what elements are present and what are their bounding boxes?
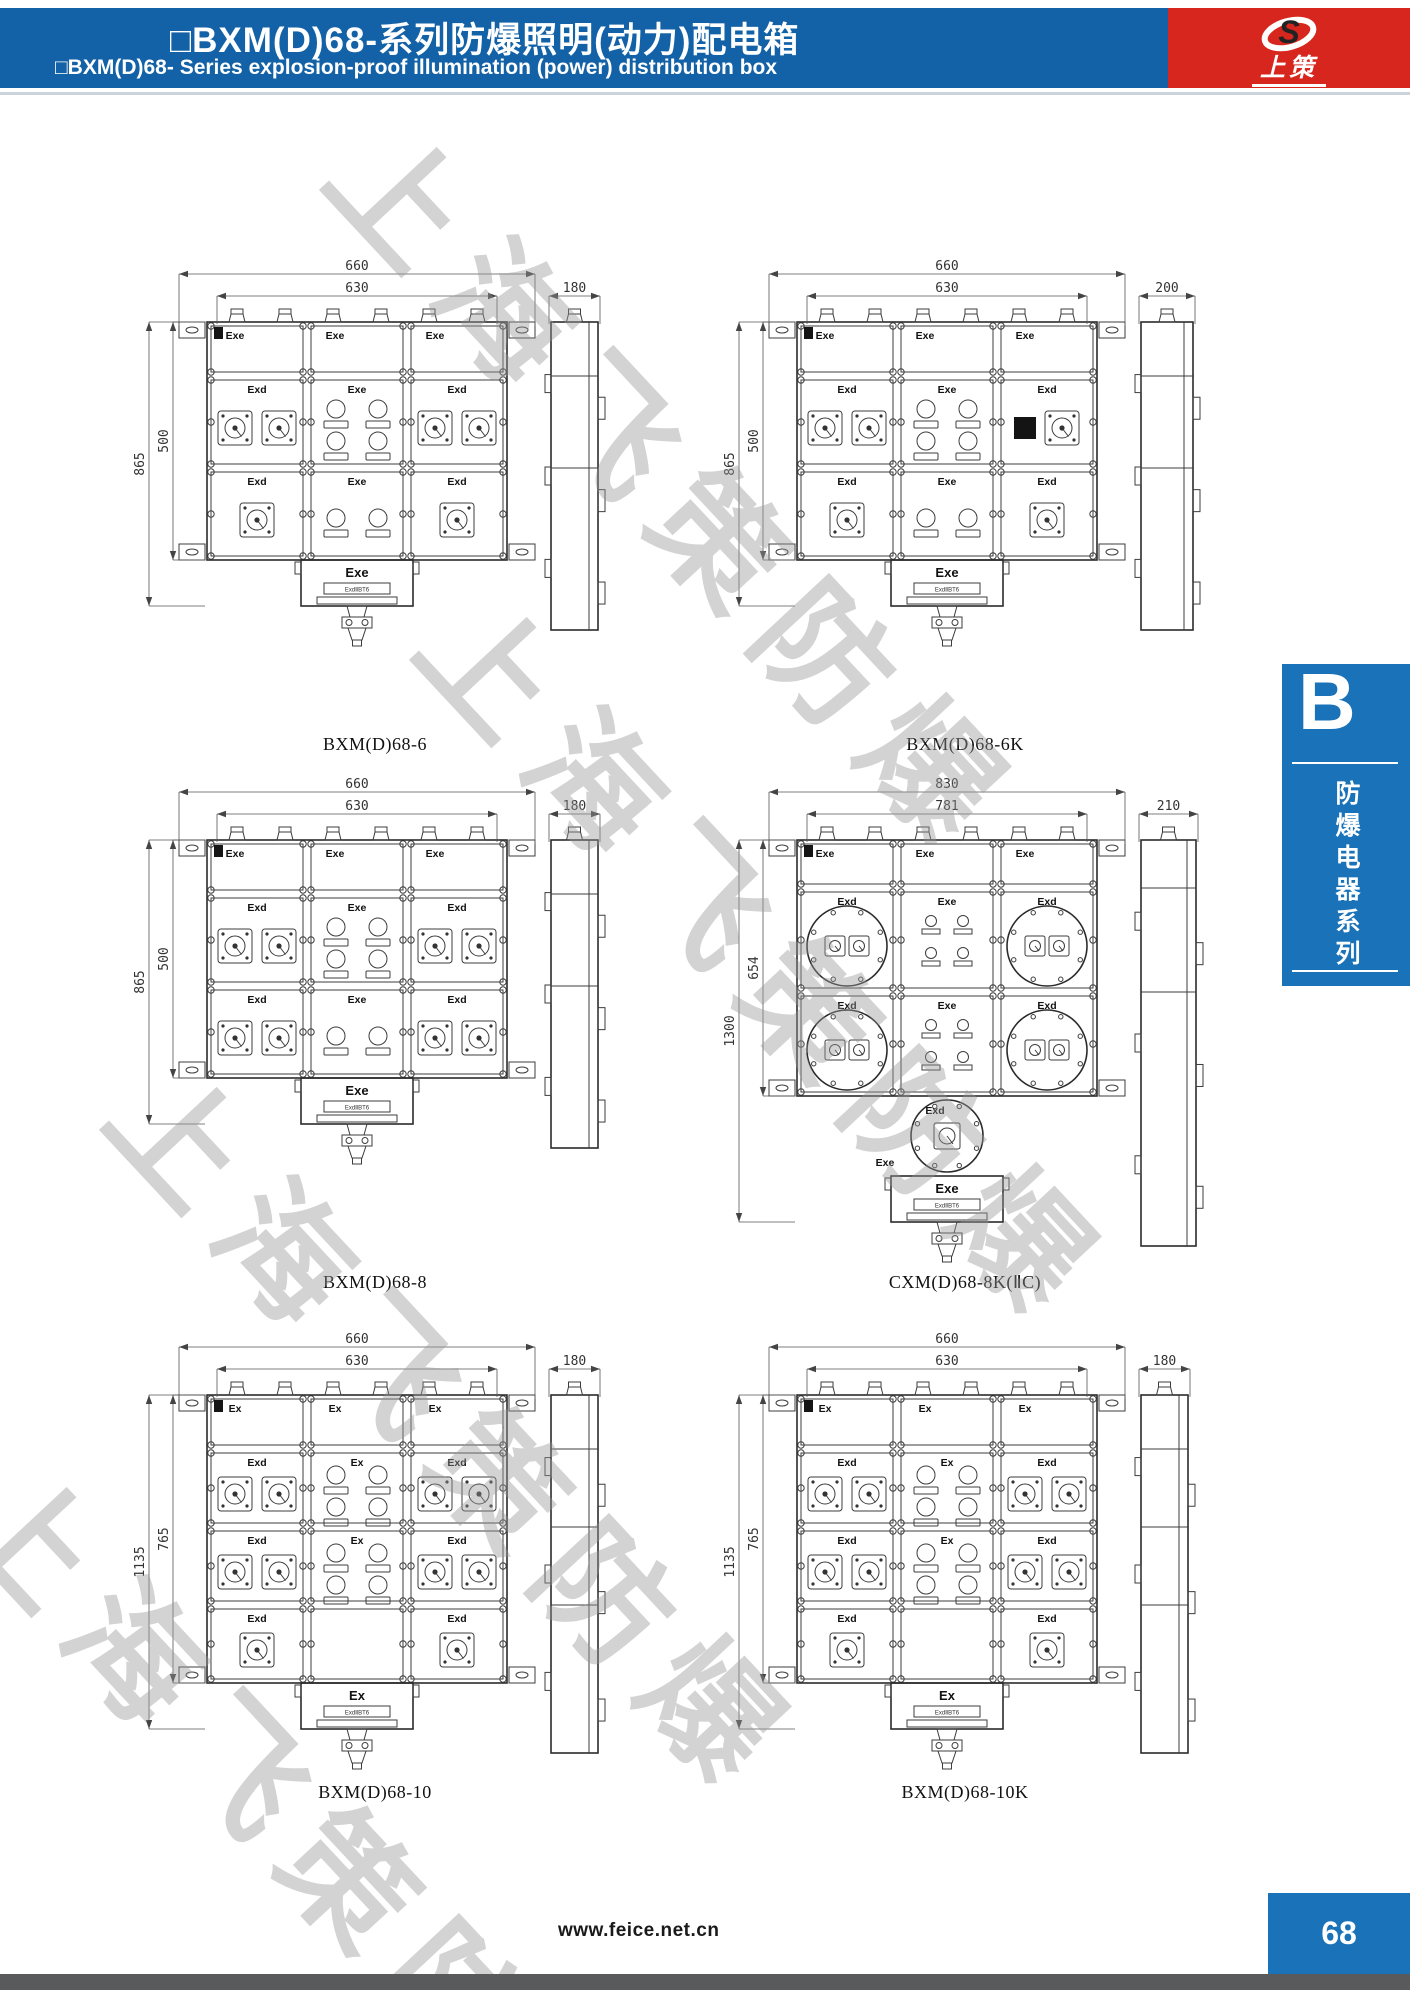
drawing-label: 660	[345, 259, 368, 274]
draw-path	[835, 1050, 839, 1055]
draw-path	[769, 789, 778, 795]
indicator-lamp	[369, 1466, 387, 1484]
draw-circle	[1044, 1647, 1049, 1652]
module-cell	[901, 1399, 993, 1445]
figure-caption: BXM(D)68-10	[95, 1782, 655, 1803]
indicator-lamp	[369, 1576, 387, 1594]
draw-path	[549, 1366, 558, 1372]
footer-strip	[0, 1974, 1410, 1990]
draw-circle	[232, 1569, 237, 1574]
drawing-label: 654	[747, 956, 762, 980]
round-module	[807, 1010, 887, 1090]
drawing-label: Ex	[1019, 1403, 1032, 1415]
draw-circle	[974, 1122, 978, 1126]
draw-rect	[1188, 1484, 1195, 1506]
draw-circle	[465, 1024, 468, 1027]
draw-circle	[811, 1582, 814, 1585]
draw-circle	[245, 956, 248, 959]
draw-circle	[857, 1636, 860, 1639]
draw-path	[1139, 1366, 1148, 1372]
draw-circle	[346, 1138, 352, 1144]
draw-circle	[1059, 1081, 1063, 1085]
draw-path	[170, 1674, 176, 1683]
draw-rect	[545, 1458, 551, 1476]
cable-gland	[917, 1382, 929, 1387]
draw-circle	[276, 943, 281, 948]
pendant-fitting	[347, 1729, 367, 1740]
draw-rect	[324, 1487, 348, 1494]
draw-circle	[289, 414, 292, 417]
draw-rect	[324, 939, 348, 946]
draw-rect	[545, 1077, 551, 1095]
draw-rect	[366, 1487, 390, 1494]
draw-circle	[879, 1582, 882, 1585]
draw-circle	[289, 1504, 292, 1507]
draw-rect	[885, 1685, 891, 1697]
drawing-label: 660	[935, 259, 958, 274]
draw-circle	[443, 506, 446, 509]
draw-circle	[243, 506, 246, 509]
draw-circle	[952, 620, 958, 626]
draw-circle	[489, 1480, 492, 1483]
drawing-label: Exe	[226, 330, 245, 342]
draw-path	[736, 597, 742, 606]
draw-circle	[952, 1236, 958, 1242]
drawing-label: Ex	[351, 1535, 364, 1547]
draw-circle	[454, 517, 459, 522]
drawing-label: 765	[747, 1527, 762, 1550]
draw-path	[1189, 811, 1198, 817]
draw-rect	[907, 1720, 987, 1727]
draw-circle	[489, 932, 492, 935]
draw-circle	[831, 1081, 835, 1085]
module-cell	[411, 1399, 503, 1445]
indicator-lamp	[959, 1544, 977, 1562]
draw-path	[760, 1674, 766, 1683]
mounting-ear	[509, 322, 535, 338]
draw-rect	[956, 1565, 980, 1572]
mounting-ear	[179, 322, 205, 338]
figure-caption: BXM(D)68-10K	[685, 1782, 1245, 1803]
draw-rect	[1135, 1034, 1141, 1052]
draw-circle	[443, 530, 446, 533]
drawing-label: 865	[723, 452, 738, 475]
draw-ellipse	[516, 1672, 528, 1678]
catalog-page: □BXM(D)68-系列防爆照明(动力)配电箱 □BXM(D)68- Serie…	[0, 0, 1410, 1990]
draw-circle	[833, 1660, 836, 1663]
cable-gland	[423, 1382, 435, 1387]
draw-path	[736, 1720, 742, 1729]
drawing-label: Exe	[938, 896, 957, 908]
draw-circle	[421, 1048, 424, 1051]
draw-path	[591, 811, 600, 817]
cable-gland	[375, 1382, 387, 1387]
draw-path	[1116, 271, 1125, 277]
draw-circle	[859, 977, 863, 981]
draw-circle	[276, 425, 281, 430]
draw-circle	[489, 1048, 492, 1051]
draw-rect	[598, 1699, 605, 1721]
drawing-label: 1135	[133, 1546, 148, 1577]
mounting-ear	[769, 544, 795, 560]
draw-circle	[232, 425, 237, 430]
cable-gland	[965, 309, 977, 314]
drawing-label: Ex	[351, 1457, 364, 1469]
draw-rect	[366, 421, 390, 428]
series-label: 防爆电器系列	[1328, 780, 1364, 972]
drawing-label: 660	[345, 777, 368, 792]
draw-circle	[465, 438, 468, 441]
draw-path	[170, 1395, 176, 1404]
cable-gland	[1161, 309, 1173, 314]
draw-circle	[489, 438, 492, 441]
logo-s-icon: S	[1251, 10, 1327, 56]
draw-rect	[413, 562, 419, 574]
round-module	[807, 906, 887, 986]
draw-circle	[245, 1504, 248, 1507]
indicator-lamp	[327, 1498, 345, 1516]
indicator-lamp	[369, 1498, 387, 1516]
draw-circle	[289, 1024, 292, 1027]
module-cell	[1001, 1399, 1093, 1445]
draw-path	[807, 293, 816, 299]
draw-path	[1059, 1050, 1063, 1055]
draw-rect	[295, 1080, 301, 1092]
draw-circle	[362, 620, 368, 626]
draw-circle	[1044, 517, 1049, 522]
cable-gland	[821, 309, 833, 314]
draw-circle	[421, 414, 424, 417]
technical-drawing-svg: ExeExeExeExdExeExdExdExeExdExeExdⅡBT6660…	[95, 238, 655, 728]
cable-gland	[375, 309, 387, 314]
draw-circle	[432, 943, 437, 948]
draw-circle	[465, 414, 468, 417]
draw-rect	[954, 1033, 972, 1038]
draw-rect	[1003, 562, 1009, 574]
draw-circle	[879, 414, 882, 417]
drawing-label: Exd	[247, 1457, 266, 1469]
draw-circle	[476, 1569, 481, 1574]
indicator-lamp	[369, 918, 387, 936]
draw-circle	[245, 932, 248, 935]
mounting-ear	[509, 1062, 535, 1078]
drawing-label: Exd	[837, 1535, 856, 1547]
draw-circle	[822, 1569, 827, 1574]
draw-rect	[956, 530, 980, 537]
draw-rect	[545, 375, 551, 393]
draw-circle	[476, 1491, 481, 1496]
draw-circle	[822, 425, 827, 430]
draw-circle	[844, 1647, 849, 1652]
draw-path	[938, 1751, 956, 1763]
indicator-lamp	[327, 1544, 345, 1562]
draw-circle	[467, 530, 470, 533]
draw-path	[938, 1244, 956, 1256]
draw-circle	[245, 1480, 248, 1483]
draw-circle	[859, 1015, 863, 1019]
draw-path	[736, 1213, 742, 1222]
cable-gland	[567, 1387, 583, 1395]
drawing-label: Exe	[345, 1083, 368, 1098]
draw-rect	[366, 971, 390, 978]
cable-gland	[1013, 309, 1025, 314]
draw-circle	[833, 1636, 836, 1639]
draw-circle	[1031, 1015, 1035, 1019]
drawing-label: ExdⅡBT6	[345, 588, 370, 594]
cable-gland	[1161, 832, 1177, 840]
mounting-ear	[179, 544, 205, 560]
drawing-label: ExdⅡBT6	[935, 1204, 960, 1210]
page-number: 68	[1321, 1915, 1357, 1952]
draw-circle	[1033, 1660, 1036, 1663]
draw-circle	[844, 517, 849, 522]
draw-circle	[245, 1048, 248, 1051]
draw-rect	[1188, 1699, 1195, 1721]
draw-circle	[1078, 1062, 1082, 1066]
draw-path	[217, 293, 226, 299]
draw-circle	[443, 1636, 446, 1639]
drawing-label: Exe	[876, 1157, 895, 1169]
draw-circle	[267, 1636, 270, 1639]
cable-gland	[915, 314, 931, 322]
draw-circle	[232, 943, 237, 948]
mounting-ear	[509, 1395, 535, 1411]
draw-circle	[1022, 1491, 1027, 1496]
draw-circle	[421, 1480, 424, 1483]
indicator-lamp	[327, 400, 345, 418]
drawing-label: Exd	[447, 1457, 466, 1469]
draw-circle	[936, 1236, 942, 1242]
draw-circle	[1012, 958, 1016, 962]
draw-circle	[822, 1491, 827, 1496]
draw-circle	[489, 414, 492, 417]
cable-gland	[1013, 1382, 1025, 1387]
draw-path	[549, 293, 558, 299]
draw-rect	[413, 1080, 419, 1092]
drawing-label: Exd	[1037, 1457, 1056, 1469]
draw-circle	[445, 1558, 448, 1561]
draw-circle	[265, 1024, 268, 1027]
draw-rect	[1188, 1592, 1195, 1614]
draw-rect	[907, 597, 987, 604]
draw-rect	[324, 421, 348, 428]
draw-path	[179, 1344, 188, 1350]
draw-path	[760, 840, 766, 849]
draw-circle	[835, 1504, 838, 1507]
side-view	[551, 322, 598, 630]
draw-circle	[276, 1035, 281, 1040]
drawing-label: Exd	[1037, 1613, 1056, 1625]
draw-rect	[324, 971, 348, 978]
cable-gland	[1059, 832, 1075, 840]
draw-circle	[1057, 530, 1060, 533]
draw-rect	[324, 530, 348, 537]
draw-circle	[1055, 1504, 1058, 1507]
draw-rect	[956, 421, 980, 428]
draw-path	[217, 811, 226, 817]
indicator-lamp	[917, 1498, 935, 1516]
draw-path	[1059, 946, 1063, 951]
draw-path	[348, 1146, 366, 1158]
draw-ellipse	[1106, 845, 1118, 851]
drawing-label: 180	[1153, 1354, 1176, 1369]
cable-gland	[229, 314, 245, 322]
draw-path	[488, 811, 497, 817]
draw-circle	[855, 1582, 858, 1585]
draw-rect	[295, 1685, 301, 1697]
indicator-lamp	[369, 1027, 387, 1045]
cable-gland	[279, 827, 291, 832]
mounting-ear	[769, 1080, 795, 1096]
side-view	[1141, 840, 1196, 1246]
drawing-root: ExeExeExeExdExeExdExdExeExdExeExdⅡBT6660…	[133, 259, 605, 646]
page-number-box: 68	[1268, 1893, 1410, 1974]
cable-gland	[1163, 827, 1175, 832]
draw-circle	[465, 1480, 468, 1483]
draw-circle	[1033, 506, 1036, 509]
draw-circle	[857, 1660, 860, 1663]
draw-circle	[1079, 1480, 1082, 1483]
draw-rect	[914, 421, 938, 428]
mounting-ear	[179, 840, 205, 856]
indicator-lamp	[327, 432, 345, 450]
draw-circle	[465, 1048, 468, 1051]
drawing-label: 830	[935, 777, 958, 792]
draw-rect	[943, 1763, 952, 1769]
draw-circle	[835, 1582, 838, 1585]
draw-circle	[267, 530, 270, 533]
drawing-label: Ex	[329, 1403, 342, 1415]
drawing-label: 865	[133, 452, 148, 475]
indicator-lamp	[369, 400, 387, 418]
cable-gland	[469, 832, 485, 840]
draw-circle	[1059, 425, 1064, 430]
draw-circle	[1011, 1504, 1014, 1507]
draw-path	[938, 628, 956, 640]
drawing-label: Exd	[837, 1457, 856, 1469]
draw-circle	[445, 414, 448, 417]
draw-circle	[432, 1569, 437, 1574]
draw-circle	[243, 530, 246, 533]
push-button	[958, 1020, 969, 1031]
indicator-lamp	[959, 1466, 977, 1484]
page-header: □BXM(D)68-系列防爆照明(动力)配电箱 □BXM(D)68- Serie…	[0, 8, 1410, 88]
drawing-label: Exe	[938, 476, 957, 488]
draw-circle	[267, 506, 270, 509]
draw-circle	[289, 438, 292, 441]
drawing-label: 660	[345, 1332, 368, 1347]
draw-circle	[1057, 1636, 1060, 1639]
mounting-ear	[509, 544, 535, 560]
mounting-ear	[1099, 1080, 1125, 1096]
drawing-figure: ExeExeExeExdExeExdExdExeExdExeExdⅡBT6660…	[685, 238, 1245, 755]
drawing-label: Ex	[819, 1403, 832, 1415]
draw-rect	[545, 1672, 551, 1690]
draw-rect	[922, 1065, 940, 1070]
draw-circle	[289, 956, 292, 959]
draw-circle	[232, 1491, 237, 1496]
drawing-label: Exd	[837, 1613, 856, 1625]
cable-gland	[231, 1382, 243, 1387]
indicator-lamp	[369, 509, 387, 527]
draw-circle	[831, 977, 835, 981]
draw-rect	[545, 1565, 551, 1583]
draw-circle	[445, 1480, 448, 1483]
draw-circle	[465, 1558, 468, 1561]
draw-circle	[289, 1048, 292, 1051]
draw-circle	[1012, 930, 1016, 934]
draw-path	[146, 840, 152, 849]
draw-circle	[1031, 911, 1035, 915]
indicator-lamp	[917, 1544, 935, 1562]
cable-gland	[471, 309, 483, 314]
draw-circle	[221, 1558, 224, 1561]
draw-circle	[1078, 1034, 1082, 1038]
draw-path	[736, 322, 742, 331]
draw-circle	[879, 1504, 882, 1507]
indicator-lamp	[959, 432, 977, 450]
draw-rect	[353, 640, 362, 646]
draw-circle	[1011, 1582, 1014, 1585]
drawing-label: 180	[563, 1354, 586, 1369]
draw-rect	[1196, 1064, 1203, 1086]
draw-circle	[445, 1504, 448, 1507]
drawing-root: ExeExeExeExdExeExdExdExeExdExeExdⅡBT6660…	[723, 259, 1200, 646]
website-link[interactable]: www.feice.net.cn	[558, 1920, 719, 1942]
draw-circle	[221, 1480, 224, 1483]
draw-circle	[1035, 1582, 1038, 1585]
draw-path	[760, 322, 766, 331]
draw-circle	[879, 1558, 882, 1561]
cable-gland	[375, 827, 387, 832]
technical-drawing-svg: ExExExExdExExdExdExExdExdExdExExdⅡBT6660…	[685, 1311, 1245, 1776]
draw-rect	[907, 1213, 987, 1220]
drawing-label: 1135	[723, 1546, 738, 1577]
indicator-lamp	[327, 918, 345, 936]
indicator-lamp	[327, 1466, 345, 1484]
drawing-label: Exe	[326, 848, 345, 860]
draw-path	[146, 1720, 152, 1729]
draw-circle	[1059, 911, 1063, 915]
draw-rect	[922, 961, 940, 966]
draw-circle	[265, 1504, 268, 1507]
cable-gland	[867, 832, 883, 840]
cable-gland	[421, 832, 437, 840]
mounting-ear	[179, 1062, 205, 1078]
draw-circle	[265, 1048, 268, 1051]
draw-circle	[915, 1122, 919, 1126]
draw-circle	[1031, 1081, 1035, 1085]
drawing-label: Exd	[247, 994, 266, 1006]
draw-circle	[1072, 438, 1075, 441]
draw-circle	[221, 1504, 224, 1507]
draw-circle	[245, 414, 248, 417]
cable-gland	[423, 827, 435, 832]
draw-path	[146, 1395, 152, 1404]
lock-block	[804, 1400, 813, 1412]
drawing-label: 1300	[723, 1015, 738, 1046]
drawing-figure: ExExExExdExExdExdExExdExdExdExExdⅡBT6660…	[95, 1311, 655, 1803]
draw-path	[1035, 946, 1039, 951]
indicator-lamp	[959, 509, 977, 527]
draw-rect	[885, 1178, 891, 1190]
draw-circle	[957, 1104, 961, 1108]
draw-circle	[421, 1504, 424, 1507]
draw-circle	[811, 438, 814, 441]
technical-drawing-svg: ExeExeExeExdExeExdExdExeExdExeExdⅡBT6660…	[95, 756, 655, 1266]
draw-circle	[1035, 1504, 1038, 1507]
draw-circle	[835, 1558, 838, 1561]
